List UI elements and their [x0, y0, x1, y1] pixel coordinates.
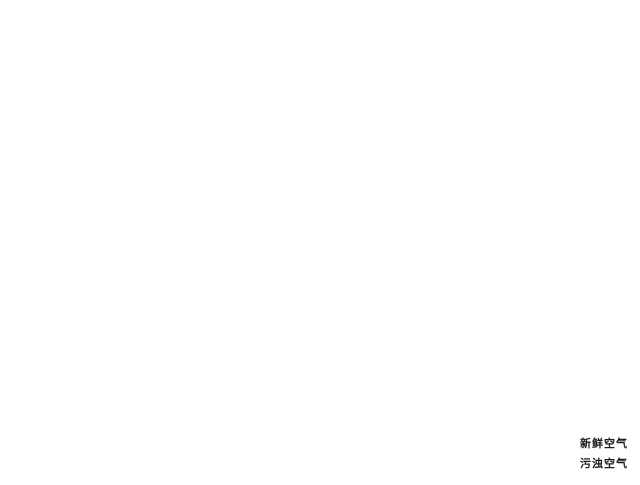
- legend-item-stale-air: 污浊空气: [518, 457, 628, 470]
- legend: 新鲜空气 污浊空气: [518, 437, 628, 470]
- stale-air-label: 污浊空气: [580, 457, 628, 470]
- stale-air-arrow-icon: [518, 457, 574, 470]
- ventilation-diagram: 新鲜空气 污浊空气: [0, 0, 640, 485]
- legend-item-fresh-air: 新鲜空气: [518, 437, 628, 450]
- floor-plan-canvas: [0, 0, 640, 485]
- fresh-air-arrow-icon: [518, 437, 574, 450]
- fresh-air-label: 新鲜空气: [580, 437, 628, 450]
